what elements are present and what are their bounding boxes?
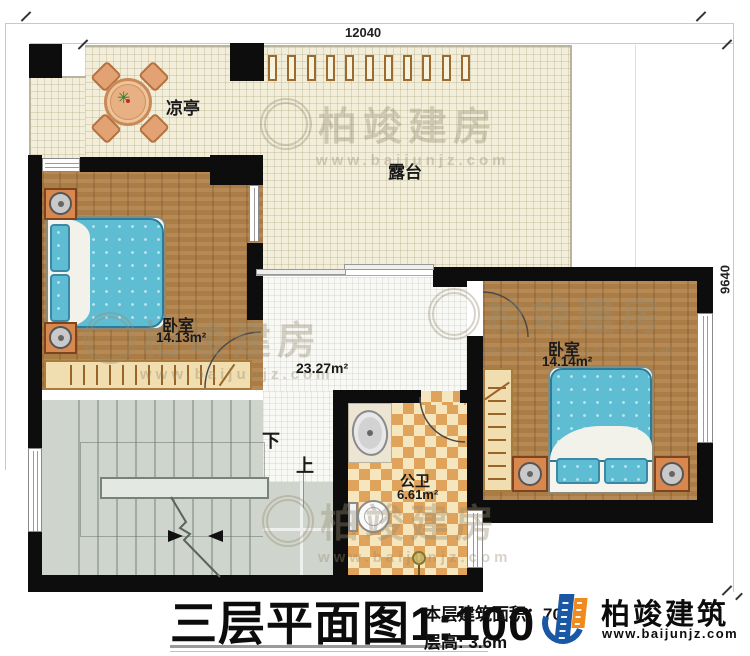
plant-icon: ✳ — [117, 88, 130, 108]
wall-column — [29, 44, 62, 78]
dimension-line-top-inner — [30, 43, 733, 44]
floor-height-line: 层高: 3.6m — [424, 628, 507, 653]
railing-post-icon — [461, 55, 470, 81]
railing-post-icon — [403, 55, 412, 81]
window — [467, 510, 483, 568]
railing-post-icon — [384, 55, 393, 81]
terrace-edge-top — [85, 45, 572, 47]
wall-bathroom-west — [333, 390, 348, 576]
window — [42, 158, 80, 172]
lamp-icon — [49, 326, 72, 349]
lamp-icon — [660, 462, 684, 486]
wall-column — [230, 43, 264, 81]
wall-column — [210, 155, 263, 185]
wall-bedroom-right-south — [483, 500, 713, 523]
dimension-tick — [696, 11, 707, 22]
wall-bedroom-right-north — [467, 267, 713, 281]
dimension-line-top-outer — [5, 23, 734, 24]
terrace-edge-right — [570, 45, 572, 270]
pillow-icon — [556, 458, 600, 484]
pillow-icon — [50, 224, 70, 272]
toilet-seat — [364, 507, 383, 526]
window — [249, 185, 259, 242]
railing-post-icon — [268, 55, 277, 81]
railing-post-icon — [287, 55, 296, 81]
hall-area: 23.27m² — [296, 360, 348, 376]
lamp-icon — [49, 192, 72, 215]
landing-line — [263, 528, 333, 531]
wall-hall-corner — [433, 267, 467, 287]
pavilion-label: 凉亭 — [166, 94, 200, 119]
dimension-tick — [722, 39, 733, 50]
railing-post-icon — [422, 55, 431, 81]
sliding-door-panel — [256, 269, 346, 275]
bathroom-area: 6.61m² — [397, 487, 438, 502]
terrace-floor-west — [30, 77, 85, 158]
window — [28, 448, 42, 532]
wall-bedroom-right-east — [697, 267, 713, 313]
plant-berry — [126, 99, 130, 103]
wall-bedroom-right-west — [467, 336, 483, 523]
stairs-down-label: 下 — [262, 427, 280, 453]
dimension-line-right — [733, 23, 734, 592]
floor-plan-canvas: ✳ — [0, 0, 750, 656]
dimension-right: 9640 — [718, 258, 733, 302]
logo-tower-orange — [571, 598, 587, 628]
railing-post-icon — [365, 55, 374, 81]
bedroom-right-area: 14.14m² — [542, 354, 592, 369]
handrail — [100, 477, 269, 499]
pillow-icon — [604, 458, 648, 484]
company-logo-icon — [540, 590, 598, 652]
railing-post-icon — [307, 55, 316, 81]
terrace-label: 露台 — [388, 158, 422, 183]
extension-line-right — [635, 45, 636, 267]
railing-post-icon — [326, 55, 335, 81]
sliding-door-track — [256, 275, 433, 276]
wall-bathroom-north — [333, 390, 421, 403]
terrace-edge-west — [29, 76, 31, 158]
wall — [247, 243, 263, 320]
railing-post-icon — [345, 55, 354, 81]
stairs-up-label: 上 — [296, 452, 314, 478]
floor-drain-icon — [412, 551, 426, 565]
wall — [80, 157, 212, 172]
sheet-border-left — [5, 23, 6, 470]
lamp-icon — [518, 462, 542, 486]
sliding-door-panel — [344, 264, 434, 270]
dimension-tick — [21, 11, 32, 22]
faucet-icon — [367, 430, 373, 436]
dimension-top: 12040 — [345, 25, 381, 40]
railing-post-icon — [442, 55, 451, 81]
wardrobe-hangers — [70, 365, 220, 385]
company-website: www.baijunjz.com — [602, 626, 738, 641]
plan-title-text: 三层平面图 — [170, 597, 410, 650]
hall-floor — [256, 277, 467, 391]
dimension-tick — [735, 593, 743, 601]
pillow-icon — [50, 274, 70, 322]
bedroom-left-area: 14.13m² — [156, 330, 206, 345]
window — [697, 313, 713, 443]
